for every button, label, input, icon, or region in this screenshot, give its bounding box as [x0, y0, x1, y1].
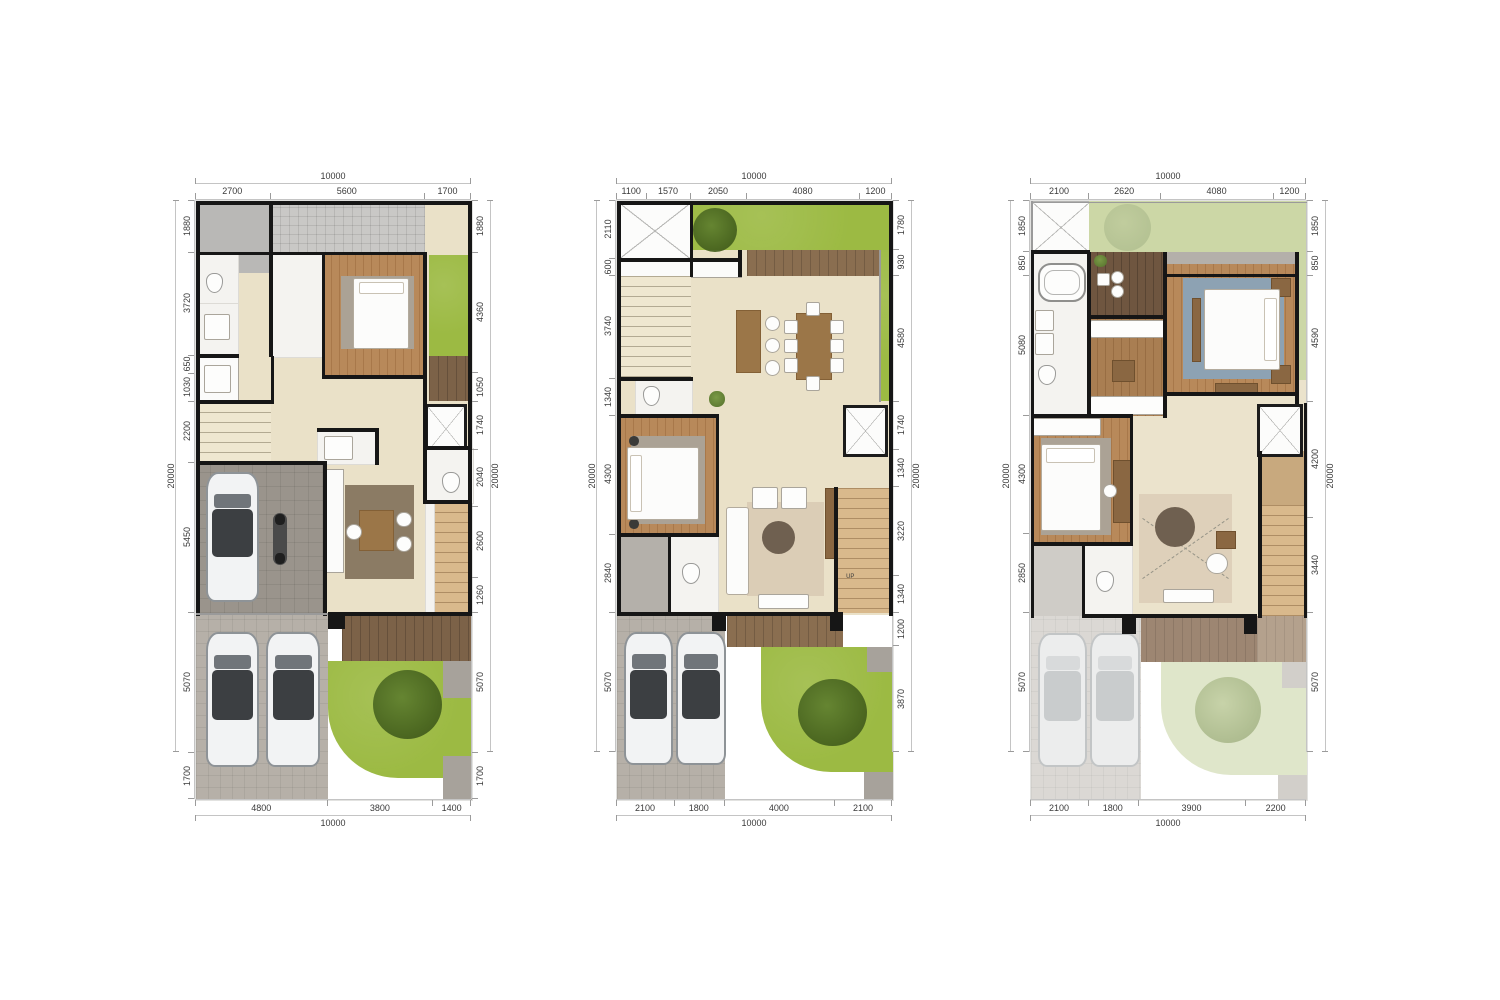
dim-chain-left: 18508505080430028505070 — [1014, 200, 1030, 799]
wall — [423, 253, 427, 404]
wall — [1082, 544, 1086, 618]
dim-segment: 5600 — [270, 184, 425, 200]
dim-label: 850 — [1310, 255, 1320, 270]
stool-icon — [765, 360, 781, 376]
dim-label: 1740 — [475, 415, 485, 435]
dim-spacer — [892, 752, 908, 799]
dim-label: 1400 — [442, 803, 462, 813]
plot-line — [1031, 202, 1307, 203]
wall — [423, 403, 427, 504]
car-icon-ghost — [1090, 633, 1140, 767]
dim-segment: 1050 — [471, 372, 487, 401]
wall — [617, 201, 621, 616]
car-icon — [676, 632, 726, 766]
plant-icon — [709, 391, 724, 406]
roof-void — [1031, 201, 1091, 254]
wall — [196, 201, 472, 205]
shaft-void — [843, 405, 888, 457]
wall — [617, 414, 719, 418]
wall-pier — [830, 612, 844, 631]
dim-segment: 5080 — [1014, 275, 1030, 415]
wall — [1031, 251, 1034, 618]
dim-label: 10000 — [1155, 818, 1180, 828]
bench-icon — [1192, 298, 1201, 362]
bathtub-icon — [1038, 263, 1086, 302]
dim-segment: 2600 — [471, 506, 487, 578]
dim-label: 1780 — [896, 215, 906, 235]
stool-icon — [396, 536, 412, 552]
dim-label: 5450 — [182, 527, 192, 547]
wardrobe-icon — [1090, 320, 1165, 339]
dim-segment: 930 — [892, 249, 908, 275]
wall — [617, 201, 893, 205]
dim-label: 4200 — [1310, 449, 1320, 469]
dim-segment: 3720 — [179, 252, 195, 355]
dim-label: 4360 — [475, 302, 485, 322]
dim-label: 4590 — [1310, 328, 1320, 348]
dim-label: 2100 — [1049, 186, 1069, 196]
dim-label: 1200 — [896, 619, 906, 639]
dim-segment: 5450 — [179, 462, 195, 612]
wall — [468, 201, 472, 616]
dim-label: 2050 — [708, 186, 728, 196]
wall-pier — [328, 612, 345, 629]
stairs — [617, 276, 691, 379]
dim-label: 930 — [896, 254, 906, 269]
wall — [738, 250, 742, 277]
dim-segment: 4580 — [892, 275, 908, 401]
wall — [323, 463, 327, 616]
dim-label: 4300 — [603, 464, 613, 484]
sofa-icon — [726, 507, 749, 595]
dim-label: 5070 — [475, 672, 485, 692]
dim-label: 1700 — [475, 766, 485, 786]
dim-label: 5070 — [182, 672, 192, 692]
dim-tick — [1305, 815, 1306, 821]
deck-front — [342, 613, 472, 660]
chair-icon — [830, 339, 844, 353]
dim-segment: 1200 — [859, 184, 892, 200]
tree-icon — [1104, 204, 1151, 251]
dim-line — [616, 815, 892, 816]
dim-label: 2100 — [1049, 803, 1069, 813]
dim-segment: 650 — [179, 355, 195, 373]
wall — [196, 252, 427, 256]
dim-segment: 2100 — [1030, 799, 1088, 815]
side-strip — [425, 502, 435, 615]
dim-label: 600 — [603, 259, 613, 274]
wall — [196, 400, 273, 404]
wall — [1031, 414, 1133, 418]
dim-label: 3900 — [1181, 803, 1201, 813]
dim-segment: 1850 — [1014, 200, 1030, 251]
toilet-icon — [206, 273, 223, 293]
plan-c-group: 1000021002620408012002100180039002200100… — [998, 168, 1338, 833]
dim-label: 1700 — [182, 766, 192, 786]
dim-label: 10000 — [320, 818, 345, 828]
dim-total-bottom: 10000 — [616, 815, 892, 831]
tree-icon — [373, 670, 442, 739]
dim-line — [1030, 815, 1306, 816]
dim-segment: 2100 — [1030, 184, 1088, 200]
sink-icon — [204, 365, 231, 393]
dim-label: 1740 — [896, 415, 906, 435]
side-table-icon — [1216, 531, 1236, 550]
dim-segment: 4000 — [724, 799, 834, 815]
dim-label: 3720 — [182, 293, 192, 313]
dim-label: 1700 — [438, 186, 458, 196]
dim-label: 3870 — [896, 689, 906, 709]
dim-label: 5070 — [603, 672, 613, 692]
dim-segment: 1030 — [179, 373, 195, 401]
dim-segment: 1340 — [892, 449, 908, 486]
dim-tick — [195, 815, 196, 821]
dim-total-bottom: 10000 — [1030, 815, 1306, 831]
dim-label: 2040 — [475, 467, 485, 487]
armchair-icon — [1206, 553, 1227, 574]
wall — [1165, 274, 1297, 278]
dim-label: 1200 — [1279, 186, 1299, 196]
wall — [1087, 252, 1091, 418]
dim-chain-bottom: 2100180040002100 — [616, 799, 892, 815]
dim-segment: 5070 — [179, 612, 195, 752]
dim-segment: 4080 — [1160, 184, 1273, 200]
wall — [322, 253, 326, 379]
wall — [1165, 392, 1297, 396]
dim-total-top: 10000 — [1030, 168, 1306, 184]
wall — [690, 201, 694, 277]
wall — [196, 461, 327, 465]
chair-icon — [784, 339, 798, 353]
wall — [328, 612, 472, 616]
dim-segment: 1200 — [892, 612, 908, 645]
wall — [834, 487, 838, 615]
plan-c-body — [1030, 200, 1308, 801]
chair-icon — [784, 358, 798, 372]
dim-chain-bottom: 2100180039002200 — [1030, 799, 1306, 815]
dim-chain-bottom: 480038001400 — [195, 799, 471, 815]
dim-label: 4580 — [896, 328, 906, 348]
dim-segment: 1340 — [892, 575, 908, 612]
deck-front — [727, 613, 843, 647]
stair-landing — [1260, 451, 1307, 505]
dim-label: 2200 — [182, 421, 192, 441]
dim-tick — [1030, 815, 1031, 821]
dim-segment: 1700 — [179, 752, 195, 799]
dim-label: 4080 — [793, 186, 813, 196]
dim-chain-top: 2100262040801200 — [1030, 184, 1306, 200]
dim-chain-top: 11001570205040801200 — [616, 184, 892, 200]
stairs-label: UP — [846, 574, 871, 591]
dim-label: 850 — [1017, 255, 1027, 270]
wall — [617, 258, 740, 262]
dim-chain-right: 18508504590420034405070 — [1306, 200, 1322, 799]
dim-segment: 2200 — [1245, 799, 1306, 815]
wall — [375, 430, 379, 465]
closet-table — [1112, 360, 1135, 383]
dim-label: 10000 — [320, 171, 345, 181]
plan-a-group: 1000027005600170048003800140010000200001… — [163, 168, 503, 833]
dim-segment: 1340 — [600, 378, 616, 415]
island-counter — [736, 310, 761, 373]
dim-segment: 2700 — [195, 184, 270, 200]
car-icon — [266, 632, 320, 767]
dim-spacer — [1306, 752, 1322, 799]
table-icon — [359, 510, 394, 551]
dim-chain-top: 270056001700 — [195, 184, 471, 200]
stairs — [196, 402, 271, 463]
deck-front-light — [1257, 616, 1307, 662]
dim-label: 2200 — [1266, 803, 1286, 813]
paving-pad — [443, 756, 472, 800]
dim-label: 5600 — [337, 186, 357, 196]
bed-icon — [627, 447, 699, 521]
car-icon — [206, 632, 260, 767]
dim-label: 4800 — [251, 803, 271, 813]
dim-segment: 1740 — [471, 401, 487, 449]
wall — [668, 535, 672, 615]
dim-total-bottom: 10000 — [195, 815, 471, 831]
paving-pad-ghost — [1278, 775, 1307, 800]
dim-tick — [1322, 200, 1328, 201]
wall — [196, 354, 239, 358]
bed-icon — [1041, 444, 1101, 532]
dim-label: 650 — [182, 356, 192, 371]
dim-segment: 3870 — [892, 645, 908, 752]
wall — [317, 428, 379, 432]
dim-segment: 1260 — [471, 577, 487, 612]
armchair-icon — [781, 487, 806, 510]
chair-icon — [784, 320, 798, 334]
dim-tick — [487, 751, 493, 752]
dim-total-top: 10000 — [195, 168, 471, 184]
car-icon-ghost — [1038, 633, 1088, 767]
plan-b-body: UP — [616, 200, 894, 801]
stool-icon — [346, 524, 362, 540]
dim-label: 2840 — [603, 563, 613, 583]
dim-label: 2850 — [1017, 563, 1027, 583]
lamp-icon — [629, 436, 639, 446]
dim-label: 1570 — [658, 186, 678, 196]
dim-label: 1260 — [475, 585, 485, 605]
wall — [889, 201, 893, 616]
roof-void — [617, 201, 693, 261]
bathroom-1 — [271, 253, 325, 358]
dim-label: 2110 — [603, 219, 613, 238]
dim-label: 1800 — [689, 803, 709, 813]
dim-label: 3740 — [603, 316, 613, 336]
dim-label: 2100 — [853, 803, 873, 813]
dim-spacer — [600, 752, 616, 799]
dim-chain-right: 188043601050174020402600126050701700 — [471, 200, 487, 799]
bed-icon — [1204, 289, 1281, 370]
dim-segment: 4300 — [600, 415, 616, 534]
dim-chain-left: 211060037401340430028405070 — [600, 200, 616, 799]
dim-label: 2700 — [222, 186, 242, 196]
dim-segment: 3220 — [892, 486, 908, 575]
dim-label: 10000 — [1155, 171, 1180, 181]
dim-label: 5070 — [1310, 672, 1320, 692]
dim-label: 1200 — [865, 186, 885, 196]
stairs — [1260, 505, 1307, 617]
dim-label: 4000 — [769, 803, 789, 813]
balcony-table — [1097, 273, 1110, 286]
paving-pad-ghost — [1282, 662, 1307, 688]
dim-segment: 2100 — [616, 799, 674, 815]
dim-segment: 1570 — [646, 184, 689, 200]
tree-icon — [693, 208, 737, 252]
dim-segment: 3900 — [1138, 799, 1246, 815]
dim-label: 3440 — [1310, 555, 1320, 575]
dim-tick — [616, 815, 617, 821]
dim-segment: 1200 — [1273, 184, 1306, 200]
shaft-void — [1257, 404, 1303, 457]
garden-patch — [429, 255, 472, 356]
chair-icon — [806, 376, 820, 390]
dim-label: 1340 — [896, 458, 906, 478]
dim-segment: 850 — [1014, 251, 1030, 274]
dim-total-right: 20000 — [487, 200, 503, 752]
dim-label: 10000 — [741, 818, 766, 828]
dim-segment: 2200 — [179, 401, 195, 462]
wall-pier — [712, 612, 726, 631]
dim-label: 1030 — [182, 377, 192, 397]
dim-chain-left: 1880372065010302200545050701700 — [179, 200, 195, 799]
dim-label: 4080 — [1207, 186, 1227, 196]
dim-segment: 1400 — [432, 799, 471, 815]
floorplan-sheet: 1000027005600170048003800140010000200001… — [0, 0, 1500, 1000]
dim-label: 2100 — [635, 803, 655, 813]
dim-total-left: 20000 — [163, 200, 179, 752]
dim-segment: 1700 — [471, 752, 487, 799]
dim-total-left: 20000 — [584, 200, 600, 752]
dim-segment: 3440 — [1306, 517, 1322, 612]
kitchen-counter — [691, 259, 742, 278]
dim-label: 1340 — [896, 584, 906, 604]
dim-segment: 1800 — [1088, 799, 1138, 815]
wall — [271, 356, 275, 404]
dim-label: 20000 — [166, 463, 176, 488]
wall — [269, 201, 273, 357]
dim-label: 3220 — [896, 521, 906, 541]
paving-pad — [864, 772, 893, 800]
wall — [323, 375, 427, 379]
wall — [425, 446, 472, 450]
plant-icon — [1094, 255, 1106, 267]
porch-gray — [617, 535, 669, 613]
dim-segment: 1740 — [892, 401, 908, 449]
dim-label: 20000 — [1325, 463, 1335, 488]
dim-segment: 2110 — [600, 200, 616, 258]
paving-pad — [867, 647, 893, 672]
dim-total-left: 20000 — [998, 200, 1014, 752]
wall — [1258, 451, 1262, 618]
lamp-icon — [629, 519, 639, 529]
wall — [716, 416, 720, 537]
dim-label: 2600 — [475, 531, 485, 551]
chair-icon — [806, 302, 820, 316]
dim-label: 20000 — [1001, 463, 1011, 488]
wall — [1304, 403, 1307, 618]
dim-label: 1100 — [621, 186, 640, 196]
basin-icon — [1035, 310, 1054, 331]
dim-label: 1850 — [1310, 216, 1320, 236]
dim-segment: 1780 — [892, 200, 908, 249]
dim-label: 3800 — [370, 803, 390, 813]
dim-label: 1050 — [475, 377, 485, 397]
dim-label: 20000 — [587, 463, 597, 488]
dim-segment: 2040 — [471, 449, 487, 505]
dim-label: 5070 — [1017, 672, 1027, 692]
dim-segment: 4200 — [1306, 401, 1322, 517]
wall — [196, 201, 200, 616]
dim-tick — [470, 815, 471, 821]
dim-segment: 1880 — [179, 200, 195, 252]
dim-segment: 5070 — [600, 612, 616, 752]
dim-segment: 5070 — [1306, 612, 1322, 752]
dim-spacer — [1014, 752, 1030, 799]
car-icon — [206, 472, 260, 603]
dim-segment: 1700 — [424, 184, 471, 200]
dim-segment: 3740 — [600, 275, 616, 378]
dim-total-top: 10000 — [616, 168, 892, 184]
wall-pier — [1122, 614, 1136, 634]
plot-line — [1031, 201, 1033, 252]
dim-segment: 1880 — [471, 200, 487, 252]
dim-tick — [891, 815, 892, 821]
armchair-icon — [752, 487, 777, 510]
wall — [1089, 315, 1165, 319]
tv-console — [758, 594, 810, 608]
chair-icon — [830, 320, 844, 334]
dim-segment: 1800 — [674, 799, 724, 815]
dim-segment: 1100 — [616, 184, 646, 200]
dim-segment: 1850 — [1306, 200, 1322, 251]
plan-b-group: UP 1 — [584, 168, 924, 833]
tv-console — [1163, 589, 1213, 603]
dim-segment: 4360 — [471, 252, 487, 372]
dim-segment: 4080 — [746, 184, 859, 200]
paving-pad — [443, 661, 472, 698]
wood-steps — [433, 502, 472, 613]
stairs-up — [836, 488, 893, 613]
dim-line — [195, 815, 471, 816]
chair-icon — [830, 358, 844, 372]
dim-label: 1340 — [603, 387, 613, 407]
wardrobe-icon — [1032, 418, 1100, 437]
dim-tick — [1322, 751, 1328, 752]
dim-segment: 850 — [1306, 251, 1322, 274]
dim-segment: 2840 — [600, 534, 616, 612]
dim-segment: 2850 — [1014, 533, 1030, 612]
plan-a-body — [195, 200, 473, 801]
deck-top — [747, 250, 879, 276]
bed-icon — [353, 278, 409, 349]
dim-segment: 2100 — [834, 799, 892, 815]
dim-segment: 2050 — [690, 184, 747, 200]
dim-segment: 5070 — [1014, 612, 1030, 752]
dim-segment: 4300 — [1014, 415, 1030, 534]
wall — [1083, 614, 1257, 618]
dim-segment: 4800 — [195, 799, 327, 815]
roof-below — [1031, 544, 1083, 616]
dim-label: 1880 — [475, 216, 485, 236]
shower-tray — [324, 436, 352, 460]
dim-tick — [487, 200, 493, 201]
dim-label: 20000 — [490, 463, 500, 488]
dim-label: 1800 — [1103, 803, 1123, 813]
dim-total-right: 20000 — [1322, 200, 1338, 752]
